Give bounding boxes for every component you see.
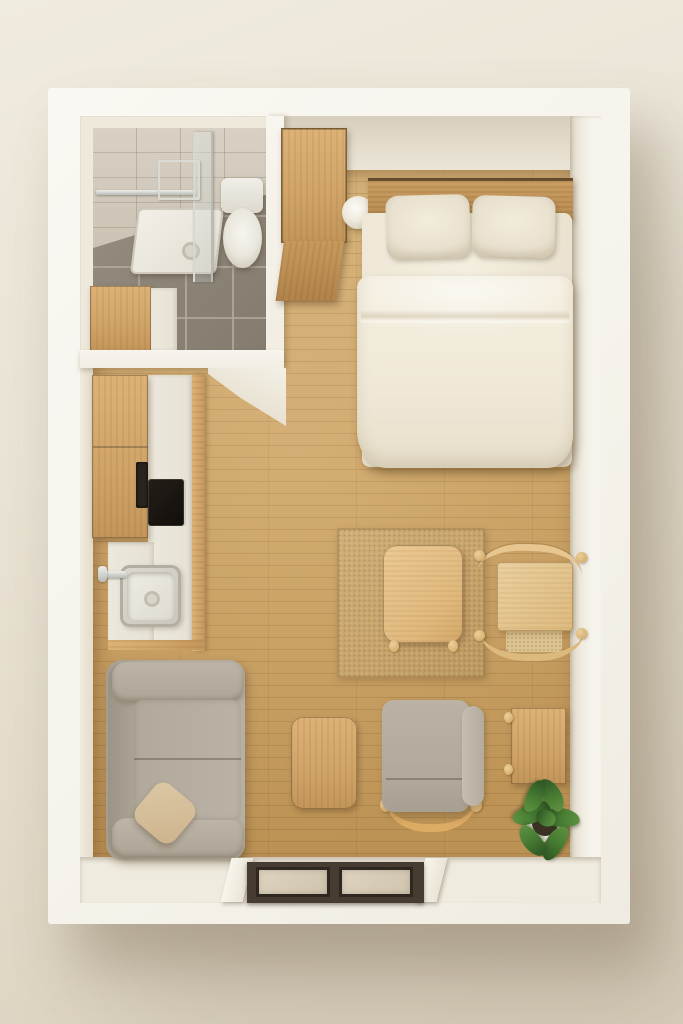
chair-leg	[576, 552, 587, 563]
wardrobe-side-face	[276, 241, 344, 301]
bathroom-partition-horizontal	[80, 350, 284, 368]
wardrobe	[281, 128, 347, 243]
doormat-left	[256, 867, 330, 897]
chair-leg	[474, 630, 485, 641]
bed	[355, 176, 575, 472]
cooktop	[148, 479, 184, 526]
shower-glass-panel	[193, 132, 213, 282]
duvet-fold	[361, 310, 569, 324]
vanity-cabinet	[90, 286, 151, 352]
lounge-armrest	[462, 706, 484, 806]
kitchenette	[93, 370, 208, 655]
doormat-right	[339, 867, 413, 897]
side-table-leg	[504, 712, 513, 723]
lounge-chair	[378, 696, 488, 828]
pillow-left	[385, 194, 471, 259]
dining-table	[383, 545, 463, 643]
table-leg	[448, 640, 458, 652]
scene	[0, 0, 683, 1024]
counter-bottom-edge	[108, 640, 205, 650]
side-table-leg	[504, 764, 513, 775]
chair-leg	[576, 628, 587, 639]
kitchen-cabinet	[92, 375, 148, 538]
toilet	[223, 208, 262, 268]
vanity-counter	[151, 288, 177, 352]
chair-seat	[497, 562, 573, 631]
entry-doormat-frame	[247, 862, 424, 903]
shower-towel-bar	[158, 160, 200, 200]
cabinet-door-seam	[93, 446, 148, 448]
faucet-handle-icon	[98, 566, 107, 582]
table-leg	[389, 640, 399, 652]
potted-plant	[506, 782, 582, 860]
coffee-table	[291, 717, 357, 809]
lounge-cushion	[382, 700, 470, 812]
chair-front-rail	[480, 628, 584, 661]
sofa-arm-top	[112, 662, 243, 702]
sofa	[106, 660, 245, 860]
pillow-right	[471, 195, 556, 258]
cabinet-appliance-inset	[136, 462, 148, 508]
sofa-cushion-seam	[134, 758, 241, 760]
sink-drain-icon	[144, 591, 160, 607]
dining-chair	[470, 538, 590, 662]
lounge-seam	[386, 778, 466, 780]
bathroom	[80, 116, 284, 368]
counter-front-edge	[192, 375, 205, 651]
chair-leg	[474, 550, 485, 561]
duvet	[357, 276, 573, 468]
side-table	[511, 708, 566, 784]
